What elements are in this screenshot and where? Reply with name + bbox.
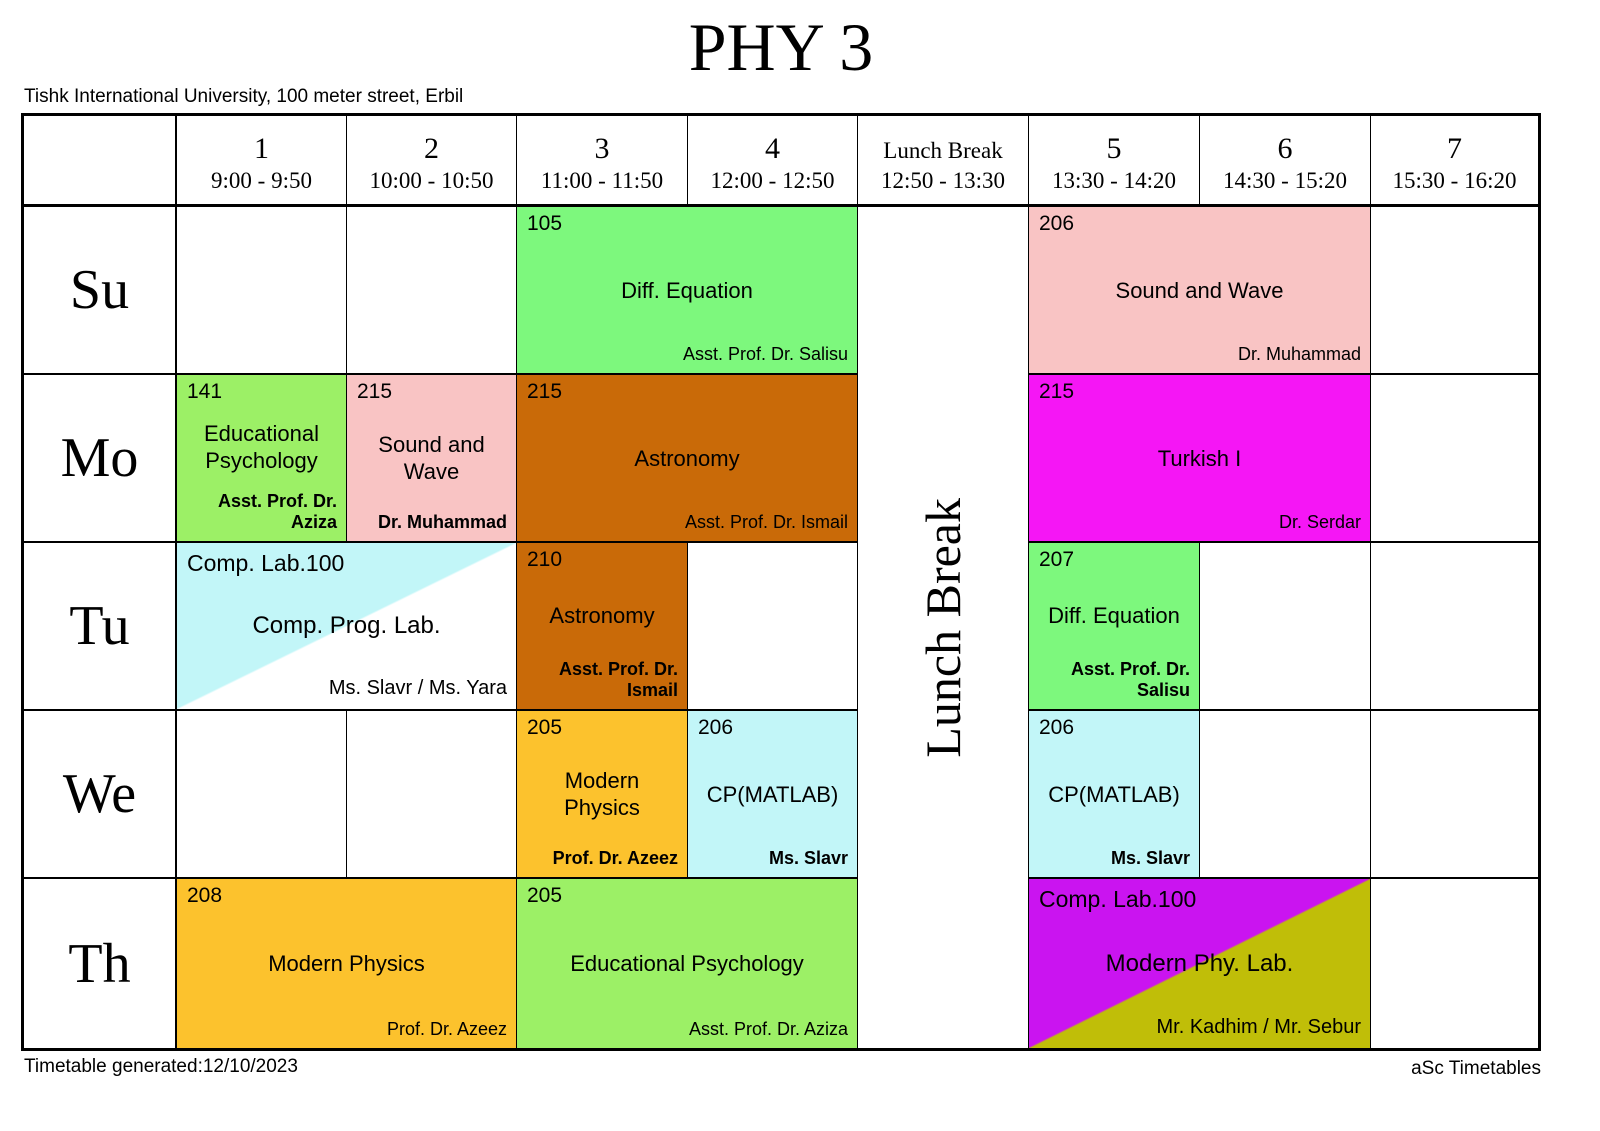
course-name: CP(MATLAB) — [688, 740, 857, 848]
teacher-name: Prof. Dr. Azeez — [177, 1019, 516, 1048]
empty-slot — [1200, 543, 1371, 711]
course-cell: 105Diff. EquationAsst. Prof. Dr. Salisu — [517, 207, 858, 375]
lunch-break-label: Lunch Break — [914, 498, 972, 758]
teacher-name: Dr. Muhammad — [347, 512, 516, 541]
empty-slot — [1200, 711, 1371, 879]
empty-slot — [177, 207, 347, 375]
course-cell: 205Modern PhysicsProf. Dr. Azeez — [517, 711, 688, 879]
course-name: Diff. Equation — [517, 236, 857, 344]
course-cell: 215AstronomyAsst. Prof. Dr. Ismail — [517, 375, 858, 543]
period-header-2: 210:00 - 10:50 — [347, 116, 517, 207]
empty-slot — [347, 711, 517, 879]
period-header-7: 715:30 - 16:20 — [1371, 116, 1538, 207]
teacher-name: Asst. Prof. Dr. Aziza — [177, 491, 346, 541]
room-number: 208 — [177, 879, 516, 908]
asc-timetables-credit: aSc Timetables — [21, 1058, 1541, 1080]
period-number: 7 — [1447, 130, 1462, 168]
course-name-text: Sound and Wave — [1116, 277, 1284, 305]
teacher-name: Asst. Prof. Dr. Ismail — [517, 512, 857, 541]
empty-slot — [1371, 879, 1538, 1048]
course-name: Educational Psychology — [177, 404, 346, 491]
room-number: 215 — [1029, 375, 1370, 404]
corner-cell — [24, 116, 177, 207]
lunch-break-column: Lunch Break — [858, 207, 1029, 1048]
teacher-name: Asst. Prof. Dr. Aziza — [517, 1019, 857, 1048]
period-number: 4 — [765, 130, 780, 168]
course-name-text: Sound and Wave — [357, 431, 506, 486]
course-name-text: Comp. Prog. Lab. — [252, 611, 440, 641]
period-time: 11:00 - 11:50 — [541, 167, 663, 196]
course-cell: 206Sound and WaveDr. Muhammad — [1029, 207, 1371, 375]
timetable-grid: Lunch Break 19:00 - 9:50210:00 - 10:5031… — [21, 113, 1541, 1051]
university-subtitle: Tishk International University, 100 mete… — [24, 86, 463, 108]
period-header-1: 19:00 - 9:50 — [177, 116, 347, 207]
empty-slot — [1371, 375, 1538, 543]
course-name-text: Diff. Equation — [621, 277, 753, 305]
day-label-mo: Mo — [24, 375, 177, 543]
empty-slot — [177, 711, 347, 879]
room-number: 215 — [347, 375, 516, 404]
room-number: 210 — [517, 543, 687, 572]
course-name-text: Diff. Equation — [1048, 602, 1180, 630]
room-number: 205 — [517, 711, 687, 740]
room-number: 207 — [1029, 543, 1199, 572]
course-name: Modern Phy. Lab. — [1029, 912, 1370, 1015]
course-cell: 215Sound and WaveDr. Muhammad — [347, 375, 517, 543]
period-time: 15:30 - 16:20 — [1393, 167, 1517, 196]
course-name: Sound and Wave — [347, 404, 516, 512]
room-number: 206 — [1029, 711, 1199, 740]
course-name-text: Modern Physics — [268, 950, 425, 978]
room-number: 206 — [1029, 207, 1370, 236]
period-header-4: 412:00 - 12:50 — [688, 116, 858, 207]
empty-slot — [347, 207, 517, 375]
period-time: 12:50 - 13:30 — [881, 167, 1005, 196]
course-cell: Comp. Lab.100Comp. Prog. Lab.Ms. Slavr /… — [177, 543, 517, 711]
course-name-text: Modern Physics — [527, 767, 677, 822]
page-title: PHY 3 — [21, 12, 1541, 83]
period-header-6: 614:30 - 15:20 — [1200, 116, 1371, 207]
period-number: 3 — [595, 130, 610, 168]
room-number: 205 — [517, 879, 857, 908]
day-label-we: We — [24, 711, 177, 879]
course-name-text: Modern Phy. Lab. — [1106, 949, 1294, 979]
period-time: 14:30 - 15:20 — [1223, 167, 1347, 196]
teacher-name: Asst. Prof. Dr. Salisu — [517, 344, 857, 373]
course-name-text: CP(MATLAB) — [1048, 781, 1180, 809]
course-cell: 208Modern PhysicsProf. Dr. Azeez — [177, 879, 517, 1048]
course-cell: 205Educational PsychologyAsst. Prof. Dr.… — [517, 879, 858, 1048]
period-header-3: 311:00 - 11:50 — [517, 116, 688, 207]
empty-slot — [1371, 207, 1538, 375]
teacher-name: Asst. Prof. Dr. Salisu — [1029, 659, 1199, 709]
room-number: 105 — [517, 207, 857, 236]
room-number: 206 — [688, 711, 857, 740]
course-cell: 206CP(MATLAB)Ms. Slavr — [1029, 711, 1200, 879]
course-name-text: Turkish I — [1158, 445, 1242, 473]
period-header-lunch: Lunch Break12:50 - 13:30 — [858, 116, 1029, 207]
teacher-name: Ms. Slavr — [1029, 848, 1199, 877]
course-name: Modern Physics — [517, 740, 687, 848]
period-number: 5 — [1107, 130, 1122, 168]
course-cell: Comp. Lab.100Modern Phy. Lab.Mr. Kadhim … — [1029, 879, 1371, 1048]
course-name-text: Educational Psychology — [570, 950, 804, 978]
course-cell: 215Turkish IDr. Serdar — [1029, 375, 1371, 543]
period-number: 6 — [1278, 130, 1293, 168]
period-time: 10:00 - 10:50 — [370, 167, 494, 196]
course-name-text: Educational Psychology — [187, 420, 336, 475]
course-cell: 141Educational PsychologyAsst. Prof. Dr.… — [177, 375, 347, 543]
empty-slot — [1371, 711, 1538, 879]
day-label-tu: Tu — [24, 543, 177, 711]
course-name-text: CP(MATLAB) — [707, 781, 839, 809]
course-name-text: Astronomy — [634, 445, 739, 473]
room-number: 141 — [177, 375, 346, 404]
room-number: Comp. Lab.100 — [177, 543, 516, 576]
day-label-th: Th — [24, 879, 177, 1048]
course-name: CP(MATLAB) — [1029, 740, 1199, 848]
teacher-name: Mr. Kadhim / Mr. Sebur — [1029, 1015, 1370, 1048]
teacher-name: Dr. Muhammad — [1029, 344, 1370, 373]
room-number: 215 — [517, 375, 857, 404]
course-name: Modern Physics — [177, 908, 516, 1019]
room-number: Comp. Lab.100 — [1029, 879, 1370, 912]
teacher-name: Prof. Dr. Azeez — [517, 848, 687, 877]
teacher-name: Dr. Serdar — [1029, 512, 1370, 541]
course-name: Astronomy — [517, 404, 857, 512]
empty-slot — [688, 543, 858, 711]
day-label-su: Su — [24, 207, 177, 375]
period-number: 2 — [424, 130, 439, 168]
teacher-name: Asst. Prof. Dr. Ismail — [517, 659, 687, 709]
course-name-text: Astronomy — [549, 602, 654, 630]
course-name: Turkish I — [1029, 404, 1370, 512]
course-name: Comp. Prog. Lab. — [177, 576, 516, 676]
course-cell: 207Diff. EquationAsst. Prof. Dr. Salisu — [1029, 543, 1200, 711]
course-name: Astronomy — [517, 572, 687, 659]
period-number: 1 — [254, 130, 269, 168]
course-cell: 206CP(MATLAB)Ms. Slavr — [688, 711, 858, 879]
teacher-name: Ms. Slavr / Ms. Yara — [177, 676, 516, 709]
period-time: 13:30 - 14:20 — [1052, 167, 1176, 196]
period-header-5: 513:30 - 14:20 — [1029, 116, 1200, 207]
course-name: Diff. Equation — [1029, 572, 1199, 659]
period-time: 9:00 - 9:50 — [211, 167, 312, 196]
empty-slot — [1371, 543, 1538, 711]
teacher-name: Ms. Slavr — [688, 848, 857, 877]
course-name: Educational Psychology — [517, 908, 857, 1019]
course-cell: 210AstronomyAsst. Prof. Dr. Ismail — [517, 543, 688, 711]
lunch-header-label: Lunch Break — [883, 134, 1002, 167]
course-name: Sound and Wave — [1029, 236, 1370, 344]
period-time: 12:00 - 12:50 — [711, 167, 835, 196]
